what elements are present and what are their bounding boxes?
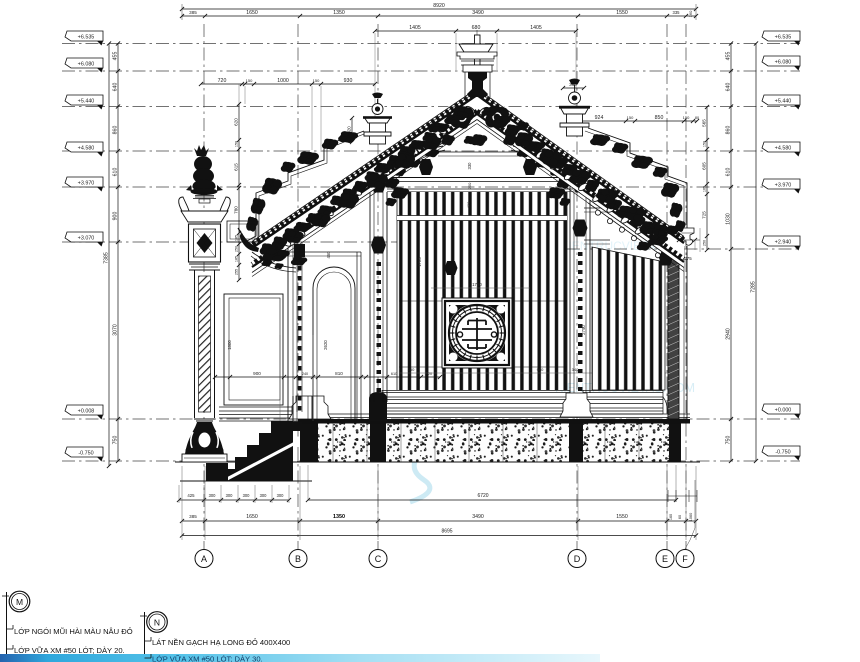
svg-text:640: 640 [113, 83, 119, 92]
svg-text:3490: 3490 [472, 514, 484, 520]
svg-text:1550: 1550 [616, 514, 628, 520]
svg-text:LỚP NGÓI MŨI HÀI MÀU NÂU ĐỎ: LỚP NGÓI MŨI HÀI MÀU NÂU ĐỎ [14, 627, 133, 636]
svg-text:1350: 1350 [333, 10, 345, 16]
svg-text:+3.970: +3.970 [78, 180, 95, 186]
svg-text:1650: 1650 [246, 10, 258, 16]
svg-text:255: 255 [235, 269, 239, 275]
svg-text:640: 640 [726, 83, 732, 92]
svg-text:385: 385 [189, 514, 197, 519]
svg-text:+3.070: +3.070 [78, 235, 95, 241]
svg-text:1650: 1650 [246, 514, 258, 520]
svg-text:300: 300 [226, 493, 234, 498]
svg-text:8695: 8695 [441, 529, 452, 535]
svg-text:924: 924 [595, 115, 604, 121]
svg-text:150: 150 [313, 78, 320, 83]
svg-text:615: 615 [234, 163, 239, 171]
svg-text:420: 420 [466, 201, 471, 208]
svg-text:250: 250 [408, 367, 415, 372]
svg-text:930: 930 [344, 78, 353, 84]
svg-text:+5.440: +5.440 [78, 98, 95, 104]
svg-text:275: 275 [684, 256, 692, 261]
svg-text:680: 680 [472, 25, 481, 31]
svg-text:LÁT NỀN GẠCH HẠ LONG ĐỎ 400X40: LÁT NỀN GẠCH HẠ LONG ĐỎ 400X400 [152, 637, 290, 647]
svg-text:80: 80 [695, 116, 699, 120]
svg-text:+0.008: +0.008 [78, 408, 95, 414]
svg-text:D: D [574, 554, 581, 564]
svg-text:1060: 1060 [689, 513, 693, 521]
svg-text:N: N [154, 617, 160, 627]
svg-text:+6.535: +6.535 [78, 34, 95, 40]
svg-text:565: 565 [702, 119, 707, 127]
svg-text:1405: 1405 [409, 25, 421, 31]
svg-text:+5.440: +5.440 [775, 98, 792, 104]
svg-text:160: 160 [688, 10, 693, 17]
svg-text:1405: 1405 [530, 25, 542, 31]
svg-text:1550: 1550 [616, 10, 628, 16]
svg-text:150: 150 [246, 78, 253, 83]
svg-text:+4.580: +4.580 [78, 145, 95, 151]
svg-text:610: 610 [726, 168, 732, 177]
svg-text:860: 860 [113, 126, 119, 135]
svg-text:1000: 1000 [277, 78, 289, 84]
svg-text:F: F [682, 554, 688, 564]
svg-text:150: 150 [235, 141, 239, 147]
svg-text:165: 165 [703, 186, 707, 192]
svg-text:900: 900 [113, 212, 119, 221]
svg-text:750: 750 [113, 436, 119, 445]
svg-text:185: 185 [235, 256, 239, 262]
svg-text:+4.580: +4.580 [775, 145, 792, 151]
svg-text:150: 150 [703, 141, 707, 147]
svg-text:+6.535: +6.535 [775, 34, 792, 40]
svg-text:3070: 3070 [113, 324, 119, 336]
svg-text:+6.080: +6.080 [78, 61, 95, 67]
svg-text:340: 340 [572, 367, 579, 372]
svg-text:425: 425 [187, 493, 195, 498]
svg-text:250: 250 [703, 240, 707, 246]
svg-text:-0.750: -0.750 [78, 450, 93, 456]
svg-text:LỚP VỮA XM #50 LÓT; DÀY 30.: LỚP VỮA XM #50 LÓT; DÀY 30. [152, 655, 263, 662]
svg-text:335: 335 [673, 10, 681, 15]
svg-text:750: 750 [726, 436, 732, 445]
svg-text:+6.080: +6.080 [775, 59, 792, 65]
svg-text:725: 725 [702, 211, 707, 219]
svg-text:610: 610 [391, 372, 397, 376]
svg-text:B: B [295, 554, 301, 564]
svg-text:6720: 6720 [477, 493, 488, 499]
svg-text:60: 60 [678, 515, 682, 519]
svg-text:250: 250 [235, 246, 239, 252]
svg-text:2790: 2790 [581, 325, 586, 335]
svg-text:+2.940: +2.940 [775, 239, 792, 245]
svg-text:300: 300 [209, 493, 217, 498]
svg-text:20: 20 [428, 372, 432, 376]
svg-text:1800: 1800 [227, 340, 232, 350]
svg-text:455: 455 [726, 52, 732, 61]
svg-text:860: 860 [726, 126, 732, 135]
svg-text:C: C [375, 554, 382, 564]
svg-text:610: 610 [113, 168, 119, 177]
svg-text:-0.750: -0.750 [775, 449, 790, 455]
svg-text:960: 960 [537, 367, 544, 372]
svg-text:455: 455 [113, 52, 119, 61]
svg-text:7385: 7385 [104, 252, 110, 264]
svg-text:3490: 3490 [472, 10, 484, 16]
svg-text:1720: 1720 [472, 282, 482, 287]
svg-text:240: 240 [302, 372, 308, 376]
svg-text:300: 300 [243, 493, 251, 498]
svg-text:780: 780 [234, 206, 239, 214]
svg-text:150: 150 [627, 115, 634, 120]
svg-text:300: 300 [277, 493, 285, 498]
svg-text:7285: 7285 [751, 281, 757, 293]
svg-text:620: 620 [234, 118, 239, 126]
svg-text:720: 720 [218, 78, 227, 84]
svg-text:850: 850 [655, 115, 664, 121]
svg-text:250: 250 [467, 182, 472, 189]
svg-text:605: 605 [702, 162, 707, 170]
svg-text:330: 330 [467, 162, 472, 170]
svg-text:2620: 2620 [323, 340, 328, 350]
svg-text:810: 810 [335, 371, 343, 376]
svg-text:M: M [16, 597, 23, 607]
svg-text:185: 185 [235, 235, 239, 241]
svg-text:385: 385 [189, 10, 197, 15]
svg-text:LỚP VỮA XM #50 LÓT; DÀY 20.: LỚP VỮA XM #50 LÓT; DÀY 20. [14, 646, 125, 655]
svg-text:8920: 8920 [433, 3, 445, 9]
svg-text:1350: 1350 [333, 514, 345, 520]
svg-text:300: 300 [260, 493, 268, 498]
svg-text:900: 900 [253, 371, 261, 376]
svg-text:+3.970: +3.970 [775, 182, 792, 188]
svg-text:1030: 1030 [726, 213, 732, 225]
svg-text:160: 160 [669, 514, 673, 520]
svg-text:+0.000: +0.000 [775, 407, 792, 413]
svg-text:2940: 2940 [726, 328, 732, 340]
svg-text:A: A [201, 554, 207, 564]
svg-text:E: E [662, 554, 668, 564]
svg-text:450: 450 [326, 251, 331, 259]
svg-text:150: 150 [683, 115, 690, 120]
svg-text:1723: 1723 [417, 257, 422, 267]
